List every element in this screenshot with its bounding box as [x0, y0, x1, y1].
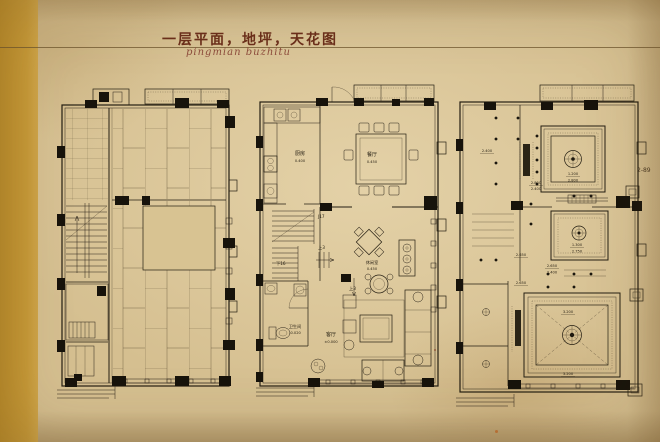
leisure-room: 休闲室 0.450 上3 [344, 217, 415, 296]
stair-ref: J17 [317, 214, 325, 219]
living-room: 客厅 ±0.000 [311, 290, 431, 381]
svg-text:2.650: 2.650 [516, 253, 527, 257]
porch-steps [57, 386, 115, 399]
stair-up-label-a: 上3 [318, 244, 325, 250]
room-level-kitchen: 0.400 [295, 159, 306, 163]
stairs [66, 203, 107, 278]
columns [256, 98, 437, 388]
svg-text:2.800: 2.800 [531, 181, 542, 185]
room-level-leisure: 0.450 [367, 267, 378, 271]
stair-down-label: 下16 [276, 261, 286, 267]
wood-floor-area [143, 206, 215, 270]
porch-steps [456, 394, 514, 407]
level-living-edge: 3.200 [563, 372, 574, 376]
window-band [511, 384, 634, 388]
ceiling-plan-drawing: 2.400 2.800 2.400 1.200 2.800 [456, 84, 648, 426]
entry-door [332, 87, 355, 102]
page-subtitle-script: pingmian buzhitu [186, 47, 291, 58]
level-dining-clg: 2.800 [568, 179, 579, 183]
level-note-corridor: 2.400 [480, 149, 494, 154]
room-label-bath: 卫生间 [289, 323, 302, 330]
kitchen: 厨房 0.400 [264, 107, 320, 203]
bathroom-tiles [66, 284, 108, 340]
large-tile-field-upper [113, 109, 226, 199]
bathroom: 卫生间 -0.020 [265, 283, 308, 339]
tile-strip [66, 109, 108, 200]
wall-pilasters [226, 180, 237, 324]
ceiling-lights [483, 309, 490, 368]
svg-text:2.650: 2.650 [516, 281, 527, 285]
dropped-beam [523, 144, 530, 176]
room-label-kitchen: 厨房 [295, 150, 305, 157]
wall-fixtures [626, 142, 646, 396]
downlights [479, 116, 593, 289]
paving-plan-drawing [57, 88, 237, 403]
level-dining-drop: 1.200 [568, 172, 579, 176]
room-level-dining: 0.450 [367, 160, 378, 164]
level-living-clg: 3.200 [563, 310, 574, 314]
binding-band [0, 0, 38, 442]
dining-room: 餐厅 0.450 [344, 123, 418, 195]
room-level-living: ±0.000 [324, 340, 338, 344]
svg-text:2.400: 2.400 [531, 187, 542, 191]
room-label-leisure: 休闲室 [366, 259, 379, 266]
tea-room-coffer: 1.300 2.750 [551, 211, 608, 260]
paper-stain [495, 430, 498, 433]
living-coffer: 3.200 3.200 [524, 293, 620, 377]
level-tea-clg: 2.750 [572, 250, 583, 254]
room-label-dining: 餐厅 [367, 151, 377, 158]
furniture-plan-drawing: 厨房 0.400 餐厅 0.450 J17 下16 上3 [256, 84, 451, 404]
storage-room [68, 346, 94, 381]
room-label-living: 客厅 [326, 331, 336, 338]
dropped-beam [515, 310, 521, 346]
columns [456, 100, 642, 390]
level-tea-drop: 1.300 [572, 243, 583, 247]
svg-text:2.650: 2.650 [547, 264, 558, 268]
svg-text:2.400: 2.400 [547, 271, 558, 275]
stairs: J17 下16 上3 [272, 209, 334, 281]
drawing-sheet: 一层平面，地坪，天花图 pingmian buzhitu 2-89 [0, 0, 660, 442]
room-level-bath: -0.020 [289, 331, 301, 335]
page-title: 一层平面，地坪，天花图 [162, 29, 338, 49]
stair-up-label-b: 上3 [349, 285, 356, 291]
level-notes-hall: 2.650 2.650 2.400 2.650 [514, 253, 606, 286]
dining-coffer: 1.200 2.800 [541, 126, 605, 192]
svg-text:2.400: 2.400 [482, 149, 493, 153]
